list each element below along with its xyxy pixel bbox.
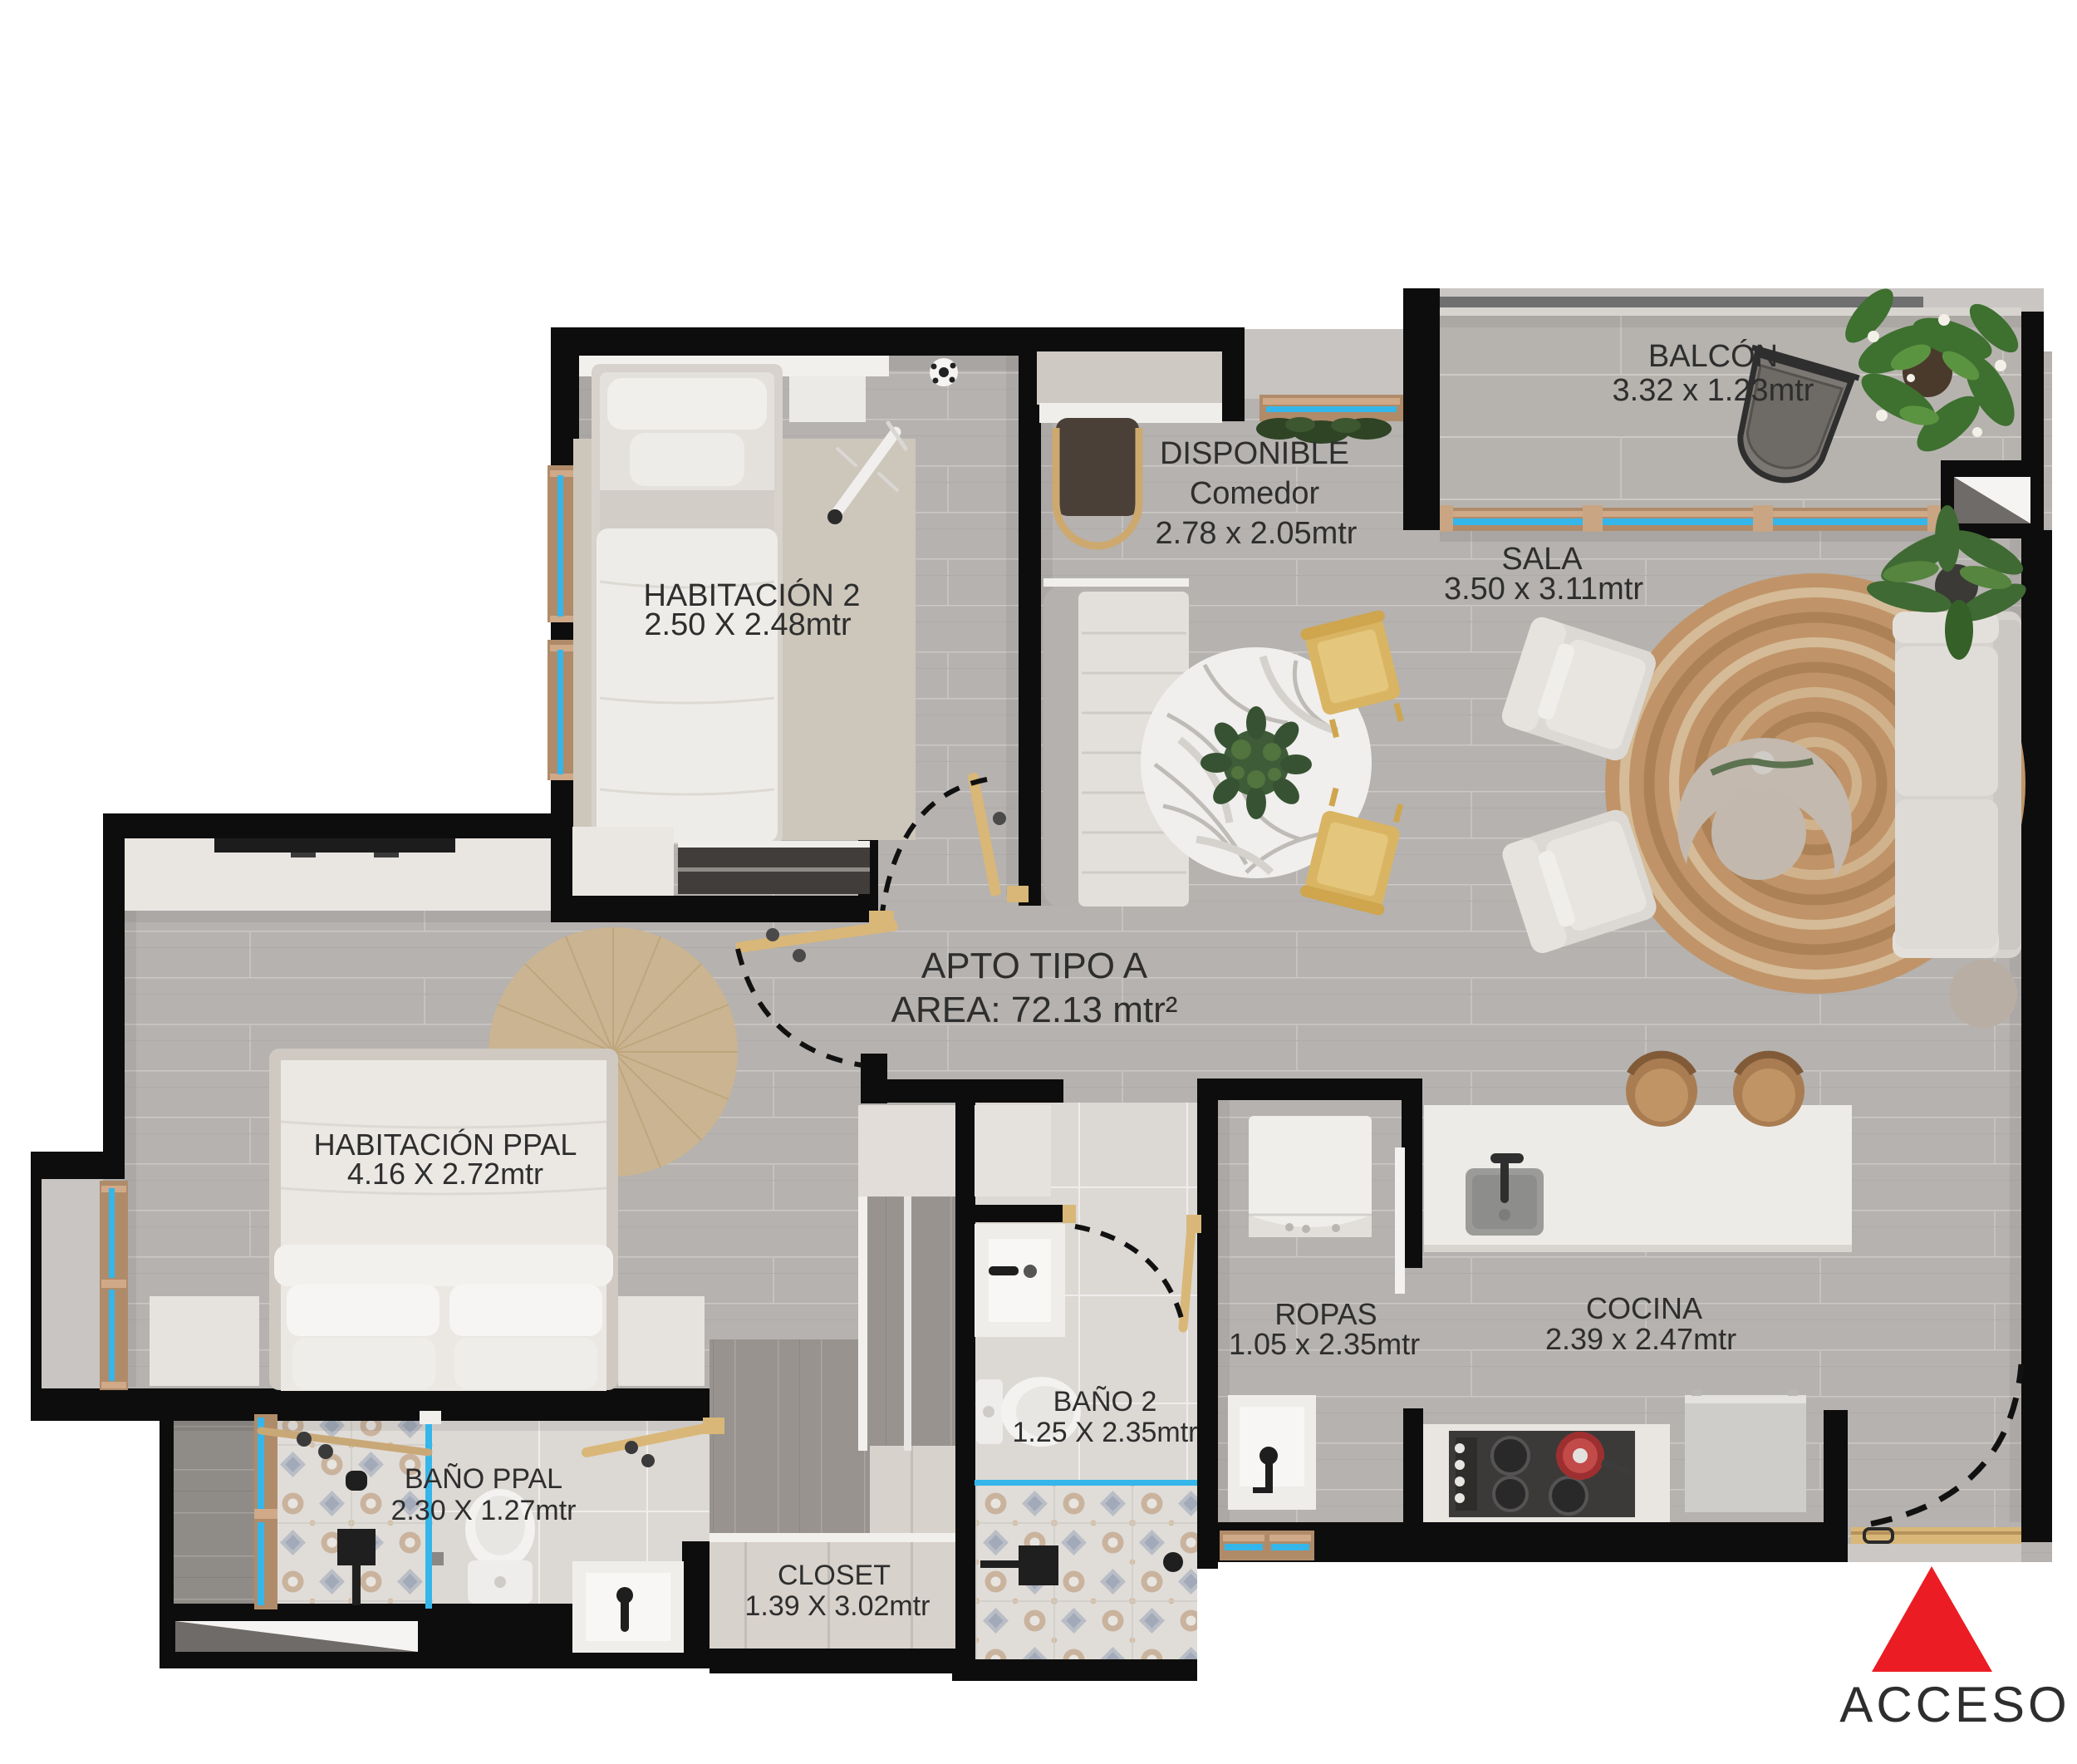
svg-text:ROPAS: ROPAS — [1274, 1297, 1377, 1331]
svg-text:2.39 x 2.47mtr: 2.39 x 2.47mtr — [1545, 1322, 1736, 1356]
svg-text:Comedor: Comedor — [1190, 476, 1320, 511]
svg-text:BAÑO PPAL: BAÑO PPAL — [405, 1463, 562, 1495]
svg-text:2.50 X 2.48mtr: 2.50 X 2.48mtr — [644, 607, 852, 642]
svg-text:APTO TIPO A: APTO TIPO A — [921, 946, 1148, 986]
svg-text:1.39 X 3.02mtr: 1.39 X 3.02mtr — [744, 1590, 930, 1622]
svg-text:AREA: 72.13 mtr²: AREA: 72.13 mtr² — [891, 990, 1178, 1030]
svg-text:2.78 x 2.05mtr: 2.78 x 2.05mtr — [1156, 516, 1358, 551]
svg-text:ACCESO: ACCESO — [1839, 1677, 2070, 1732]
svg-text:2.30 X 1.27mtr: 2.30 X 1.27mtr — [390, 1495, 576, 1526]
svg-text:4.16 X 2.72mtr: 4.16 X 2.72mtr — [347, 1157, 543, 1191]
svg-text:BALCÓN: BALCÓN — [1648, 338, 1778, 374]
svg-text:3.32 x 1.23mtr: 3.32 x 1.23mtr — [1613, 373, 1814, 408]
svg-text:COCINA: COCINA — [1586, 1291, 1702, 1325]
svg-text:DISPONIBLE: DISPONIBLE — [1160, 436, 1349, 471]
svg-text:3.50 x 3.11mtr: 3.50 x 3.11mtr — [1444, 572, 1643, 607]
svg-text:CLOSET: CLOSET — [778, 1560, 891, 1591]
svg-text:1.25 X 2.35mtr: 1.25 X 2.35mtr — [1012, 1417, 1197, 1448]
svg-text:BAÑO 2: BAÑO 2 — [1053, 1386, 1157, 1418]
svg-text:1.05 x 2.35mtr: 1.05 x 2.35mtr — [1229, 1327, 1420, 1361]
